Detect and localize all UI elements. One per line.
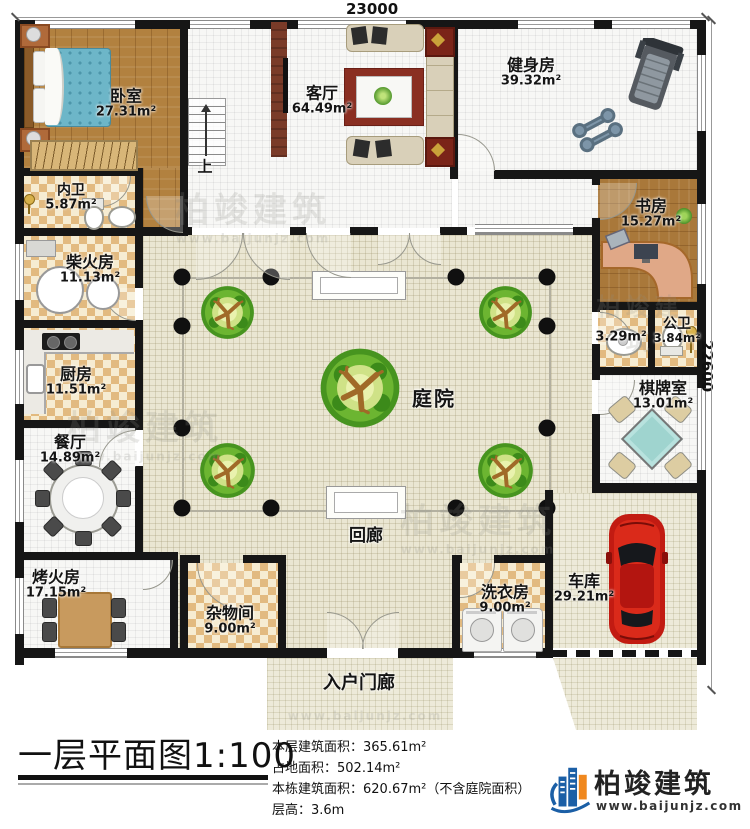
- window: [190, 20, 250, 29]
- wall: [592, 179, 600, 185]
- wall: [170, 560, 178, 648]
- wall: [135, 168, 143, 236]
- stat-land-area: 占地面积：502.14m²: [272, 758, 530, 779]
- chair: [111, 622, 126, 642]
- car: [606, 512, 668, 648]
- treadmill: [612, 38, 696, 114]
- window: [55, 648, 127, 658]
- wall: [290, 227, 306, 235]
- cushion: [375, 139, 392, 158]
- wall: [592, 414, 600, 490]
- wardrobe: [30, 140, 138, 171]
- room-label-porch: 入户门廊: [323, 674, 395, 695]
- chair: [111, 598, 126, 618]
- tree: [200, 285, 255, 340]
- window: [15, 350, 24, 404]
- tree: [477, 442, 534, 499]
- sink: [26, 364, 45, 394]
- chair: [42, 622, 57, 642]
- title-underline: [18, 775, 268, 780]
- dimension-right: 22600: [698, 340, 716, 392]
- stairs-up-label: 上: [197, 158, 212, 175]
- brand-website[interactable]: www.baijunjz.com: [596, 799, 743, 813]
- room-label-study: 书房 15.27m²: [621, 197, 681, 230]
- stat-floor-area: 本层建筑面积：365.61m²: [272, 737, 530, 758]
- courtyard-bench: [326, 486, 406, 519]
- room-label-kitchen: 厨房 11.51m²: [46, 365, 106, 398]
- tree: [478, 285, 533, 340]
- window: [15, 244, 24, 300]
- plant: [374, 87, 392, 105]
- wall: [135, 236, 143, 288]
- column: [539, 420, 556, 437]
- room-label-living: 客厅 64.49m²: [292, 84, 352, 117]
- wall: [398, 648, 452, 658]
- brand-logo-icon: [548, 760, 592, 816]
- wall: [15, 420, 143, 428]
- wall: [452, 555, 460, 648]
- room-label-public-bath: 公卫 3.84m²: [653, 316, 700, 346]
- stairs-arrow-line: [205, 110, 207, 156]
- wall: [494, 170, 705, 179]
- window: [518, 20, 594, 29]
- wall: [243, 555, 286, 563]
- wall: [15, 320, 143, 328]
- window: [612, 20, 690, 29]
- column: [174, 269, 191, 286]
- dimension-line-top: [15, 17, 706, 18]
- room-label-courtyard: 庭院: [412, 388, 456, 411]
- column: [174, 420, 191, 437]
- dumbbells: [572, 108, 624, 154]
- chair: [35, 490, 50, 507]
- toilet-tank: [660, 346, 683, 356]
- wall: [135, 320, 143, 430]
- room-label-laundry: 洗衣房 9.00m²: [479, 583, 530, 616]
- room-label-corridor: 回廊: [349, 527, 383, 547]
- column: [448, 500, 465, 517]
- window: [697, 55, 706, 131]
- courtyard-bench: [312, 271, 406, 300]
- tree: [199, 442, 256, 499]
- cushion: [371, 26, 388, 44]
- wall: [592, 483, 705, 493]
- room-label-washbasin: 3.29m²: [595, 331, 646, 346]
- brand-name: 柏竣建筑: [594, 762, 714, 801]
- cushion: [351, 26, 368, 45]
- wall: [278, 555, 286, 648]
- room-label-firewood: 柴火房 11.13m²: [60, 253, 120, 286]
- chair: [116, 490, 131, 507]
- page-title: 一层平面图1:100: [18, 728, 296, 777]
- wall: [15, 552, 178, 560]
- wall: [267, 648, 327, 658]
- window: [15, 460, 24, 522]
- wall: [592, 218, 600, 312]
- washing-machine-door: [511, 618, 535, 642]
- sink: [108, 206, 136, 228]
- wall: [592, 302, 705, 310]
- dimension-top: 23000: [346, 0, 398, 18]
- floor-plan: 柏竣建筑 www.baijunjz.com 柏竣建筑 www.baijunjz.…: [0, 0, 750, 829]
- tree-large: [319, 347, 401, 429]
- column: [174, 500, 191, 517]
- room-label-heating: 烤火房 17.15m²: [26, 568, 86, 601]
- stats-block: 本层建筑面积：365.61m² 占地面积：502.14m² 本栋建筑面积：620…: [272, 737, 530, 821]
- room-label-inner-bath: 内卫 5.87m²: [45, 182, 96, 213]
- garage-door-dashed: [553, 650, 697, 657]
- dining-table-center: [62, 477, 104, 519]
- courtyard-window: [475, 224, 573, 235]
- driveway: [553, 658, 697, 730]
- washing-machine-door: [470, 618, 494, 642]
- column: [448, 269, 465, 286]
- wall: [15, 20, 24, 665]
- shower-head: [24, 194, 35, 205]
- column: [263, 500, 280, 517]
- burner: [64, 336, 77, 349]
- column: [539, 269, 556, 286]
- room-label-chess: 棋牌室 13.01m²: [633, 379, 693, 412]
- stat-total-area: 本栋建筑面积：620.67m²（不含庭院面积）: [272, 779, 530, 800]
- wall: [573, 227, 592, 235]
- room-label-dining: 餐厅 14.89m²: [40, 433, 100, 466]
- window: [697, 388, 706, 470]
- room-label-storage: 杂物间 9.00m²: [204, 604, 255, 637]
- wall: [180, 555, 200, 563]
- wall: [350, 227, 378, 235]
- burner: [47, 336, 60, 349]
- window: [15, 578, 24, 634]
- wall: [592, 344, 600, 380]
- bench-detail: [320, 277, 398, 294]
- basin: [26, 240, 56, 257]
- window: [35, 20, 135, 29]
- wall: [440, 227, 467, 235]
- column: [174, 318, 191, 335]
- wall: [545, 490, 553, 655]
- cushion: [353, 139, 370, 158]
- bed-sheet: [45, 48, 64, 125]
- room-label-gym: 健身房 39.32m²: [501, 56, 561, 89]
- window: [697, 204, 706, 284]
- wall: [135, 466, 143, 552]
- stat-floor-height: 层高：3.6m: [272, 800, 530, 821]
- dimension-line-right: [711, 20, 712, 690]
- title-underline-thin: [18, 783, 268, 785]
- wall: [180, 555, 188, 648]
- wall: [15, 648, 267, 658]
- tv: [283, 58, 288, 113]
- study-desk: [600, 228, 696, 300]
- room-label-garage: 车库 29.21m²: [554, 572, 614, 605]
- column: [539, 318, 556, 335]
- wall: [452, 555, 462, 563]
- chair: [75, 531, 92, 546]
- nightstand-lamp: [26, 27, 41, 42]
- stairs-arrow-head: [201, 104, 211, 112]
- room-label-bedroom: 卧室 27.31m²: [96, 87, 156, 120]
- bench-detail: [334, 492, 398, 513]
